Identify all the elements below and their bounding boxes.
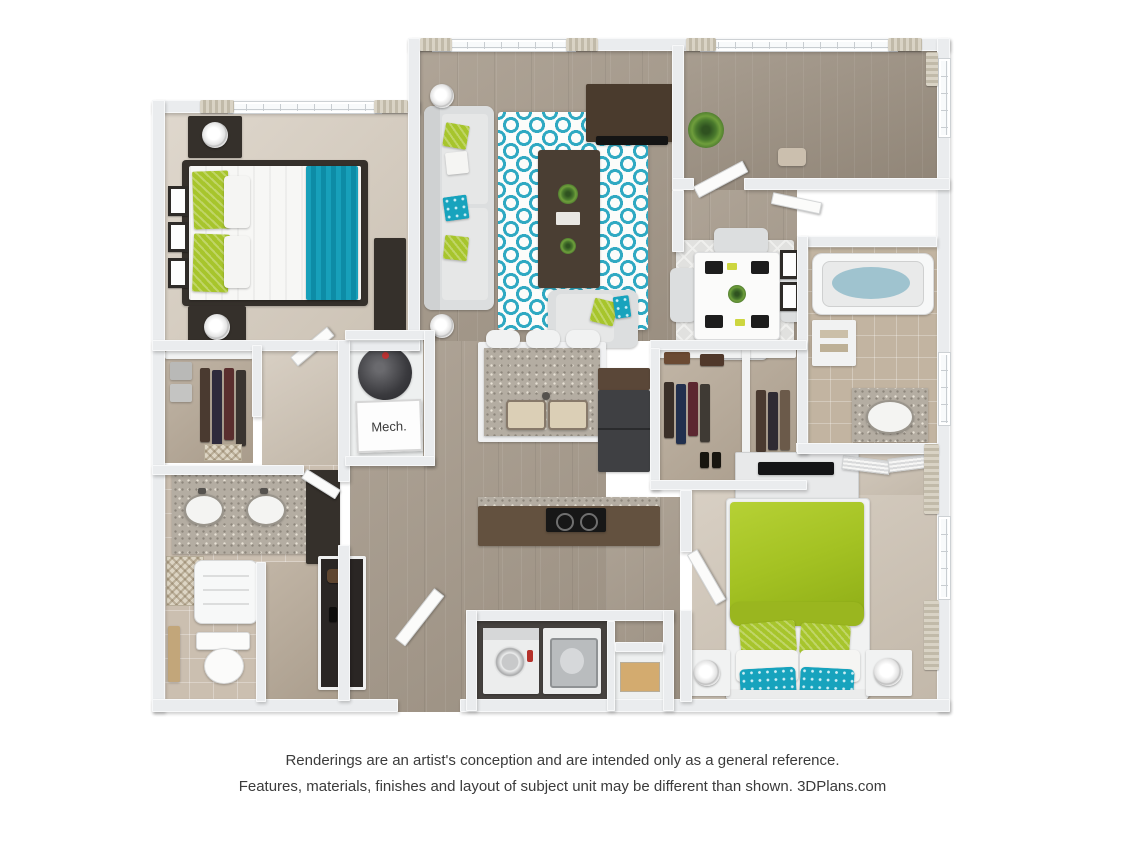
coffee-table xyxy=(538,150,600,288)
wall-exterior-bottom-left xyxy=(152,699,398,712)
bath2-window xyxy=(938,352,951,426)
closet2-shoes-2 xyxy=(712,452,721,468)
dining-table xyxy=(694,252,780,340)
bed1-wall-art-1 xyxy=(168,186,188,216)
coffee-table-bowl-plant-icon xyxy=(560,238,576,254)
wall-sunroom-bottom-b xyxy=(744,178,950,190)
washer-red-button xyxy=(527,650,533,662)
closet2-clothes-6 xyxy=(768,392,778,450)
closet2-clothes-2 xyxy=(676,384,686,444)
coffee-table-books xyxy=(556,212,580,225)
master-closet-clothes-2 xyxy=(212,370,222,448)
bed2-green-blanket-roll xyxy=(730,602,864,626)
tv-flatscreen xyxy=(596,136,668,145)
bedroom1-entry-nook-floor xyxy=(262,351,338,465)
floor-plan-3d-rendering: Mech. xyxy=(0,0,1125,844)
sunroom-side-window xyxy=(938,58,951,138)
closet2-clothes-4 xyxy=(700,384,710,442)
bed1-wall-art-2 xyxy=(168,222,188,252)
sunroom-plant-icon xyxy=(688,112,724,148)
kitchen-sink-basin-left xyxy=(506,400,546,430)
floor-lamp-top xyxy=(430,84,454,108)
wall-bath2-bottom xyxy=(797,443,937,454)
dryer-door-glass xyxy=(560,648,584,674)
closet2-shoes xyxy=(700,452,709,468)
tub-ridge-1 xyxy=(203,575,249,577)
bed1-pillow-white-1 xyxy=(224,176,250,228)
wall-mech-top xyxy=(345,330,435,340)
wall-sunroom-bottom-a xyxy=(672,178,694,190)
sunroom-table xyxy=(778,148,806,166)
master-bathtub xyxy=(194,560,258,624)
wall-master-closet-right xyxy=(252,345,262,417)
washer-lid-icon xyxy=(494,646,526,678)
bath2-towels xyxy=(820,330,848,338)
sunroom-floor xyxy=(684,51,937,190)
wall-bedroom2-left-lower xyxy=(680,610,692,702)
armchair-pillow-teal xyxy=(613,295,632,319)
sofa-pillow-white-1 xyxy=(445,151,469,175)
refrigerator-door-split xyxy=(598,428,650,430)
wall-laundry-left xyxy=(466,610,477,711)
disclaimer-line-1: Renderings are an artist's conception an… xyxy=(0,752,1125,769)
bath2-sink xyxy=(866,400,914,434)
wall-laundry-niche-top xyxy=(615,642,663,652)
wall-bedroom1-bottom xyxy=(152,340,420,351)
wall-center-left-lower xyxy=(338,545,350,701)
floor-plan-page: Mech. xyxy=(0,0,1125,844)
towel-bar xyxy=(168,626,180,682)
bedroom2-window xyxy=(938,516,951,600)
napkin-2 xyxy=(735,319,745,326)
wall-mech-bottom xyxy=(345,456,435,466)
master-closet-box-1 xyxy=(170,362,192,380)
wall-mech-right xyxy=(424,330,435,466)
refrigerator xyxy=(598,390,650,472)
toilet-bowl xyxy=(204,648,244,684)
wall-master-bath-top xyxy=(152,465,304,475)
living-curtain-left xyxy=(420,38,452,51)
bar-stool-2 xyxy=(526,330,560,348)
wall-exterior-left xyxy=(152,100,165,712)
bed1-lamp-bottom xyxy=(204,314,230,340)
sunroom-curtain-left xyxy=(686,38,716,51)
wall-closet2-left xyxy=(650,348,660,490)
dining-centerpiece-icon xyxy=(728,285,746,303)
closet2-clothes-5 xyxy=(756,390,766,452)
bath2-linen-niche xyxy=(812,320,856,366)
master-closet-box-2 xyxy=(170,384,192,402)
wall-living-right-stub xyxy=(672,190,684,252)
sofa-pillow-teal xyxy=(442,194,469,221)
bed2-green-duvet xyxy=(730,502,864,618)
dryer xyxy=(543,628,601,694)
placemat-3 xyxy=(705,315,723,328)
bed1-teal-runner xyxy=(306,166,358,300)
living-curtain-right xyxy=(566,38,598,51)
sofa-pillow-green-1 xyxy=(442,122,470,150)
bed2-dresser xyxy=(735,452,859,500)
bedroom2-curtain-top xyxy=(924,444,939,514)
bath2-tub-water xyxy=(832,267,910,299)
living-window xyxy=(432,39,576,52)
bar-stool-3 xyxy=(566,330,600,348)
bedroom1-curtain-left xyxy=(200,100,234,113)
master-closet-clothes-3 xyxy=(224,368,234,440)
closet2-clothes-1 xyxy=(664,382,674,438)
closet2-clothes-3 xyxy=(688,382,698,436)
bath2-towels-2 xyxy=(820,344,848,352)
bed2-lamp-left xyxy=(694,660,720,686)
cooktop xyxy=(546,508,606,532)
wall-bedroom2-left-upper xyxy=(680,490,692,552)
washer xyxy=(483,628,539,694)
master-closet-shelf xyxy=(165,351,253,359)
sunroom-side-curtain xyxy=(926,52,938,86)
wall-closet2-top xyxy=(650,340,807,350)
washer-control-panel xyxy=(483,628,539,640)
bedroom1-curtain-right xyxy=(374,100,408,113)
wall-bath2-top xyxy=(797,236,937,247)
sofa-pillow-green-2 xyxy=(443,235,469,261)
bed1-dresser xyxy=(374,238,406,332)
wall-laundry-niche-divider xyxy=(607,621,615,711)
laundry-basket xyxy=(620,662,660,692)
disclaimer-line-2: Features, materials, finishes and layout… xyxy=(0,778,1125,795)
master-sink-right xyxy=(246,494,286,526)
wall-laundry-right xyxy=(663,610,674,711)
master-faucet-right-icon xyxy=(260,488,268,494)
wall-master-bath-divider xyxy=(256,562,266,702)
coffee-table-plant-icon xyxy=(558,184,578,204)
bed1-lamp-top xyxy=(202,122,228,148)
shelf-shoe-1 xyxy=(329,607,337,622)
master-faucet-left-icon xyxy=(198,488,206,494)
placemat-2 xyxy=(751,261,769,274)
master-sink-left xyxy=(184,494,224,526)
tub-ridge-2 xyxy=(203,589,249,591)
bed1-pillow-white-2 xyxy=(224,236,250,288)
wall-laundry-top xyxy=(466,610,674,621)
tv-console xyxy=(586,84,676,142)
placemat-1 xyxy=(705,261,723,274)
master-closet-clothes-4 xyxy=(236,370,246,446)
bed2-lamp-right xyxy=(874,658,902,686)
wall-exterior-bottom-right xyxy=(460,699,950,712)
bath2-tub xyxy=(812,253,934,315)
water-heater-valve xyxy=(382,352,389,359)
closet2-bag-1 xyxy=(664,352,690,364)
sunroom-curtain-right xyxy=(888,38,922,51)
bed1-wall-art-3 xyxy=(168,258,188,288)
bar-stool-1 xyxy=(486,330,520,348)
sunroom-window xyxy=(700,39,898,52)
wall-closet2-bottom xyxy=(650,480,807,490)
wall-bedroom1-living xyxy=(408,38,420,351)
master-closet-basket xyxy=(204,444,242,461)
kitchen-faucet-icon xyxy=(542,392,550,400)
bedroom2-curtain-bottom xyxy=(924,600,939,670)
burner-1 xyxy=(556,513,574,531)
placemat-4 xyxy=(751,315,769,328)
water-heater-icon xyxy=(358,346,412,400)
closet2-bag-2 xyxy=(700,354,724,366)
wall-sunroom-left xyxy=(672,45,684,190)
burner-2 xyxy=(580,513,598,531)
mech-room-label-card: Mech. xyxy=(355,399,423,453)
dining-chair-top xyxy=(714,228,768,254)
napkin-1 xyxy=(727,263,737,270)
closet2-clothes-7 xyxy=(780,390,790,450)
kitchen-upper-cabinet xyxy=(598,368,650,390)
dining-chair-left xyxy=(670,268,696,322)
sofa-back-cushion xyxy=(424,106,440,310)
bed2-headboard xyxy=(726,690,868,699)
master-closet-clothes-1 xyxy=(200,368,210,442)
mech-room-label: Mech. xyxy=(371,418,407,434)
bedroom1-window xyxy=(228,101,382,114)
bed2-tv-flatscreen xyxy=(758,462,834,475)
kitchen-sink-basin-right xyxy=(548,400,588,430)
tub-ridge-3 xyxy=(203,603,249,605)
